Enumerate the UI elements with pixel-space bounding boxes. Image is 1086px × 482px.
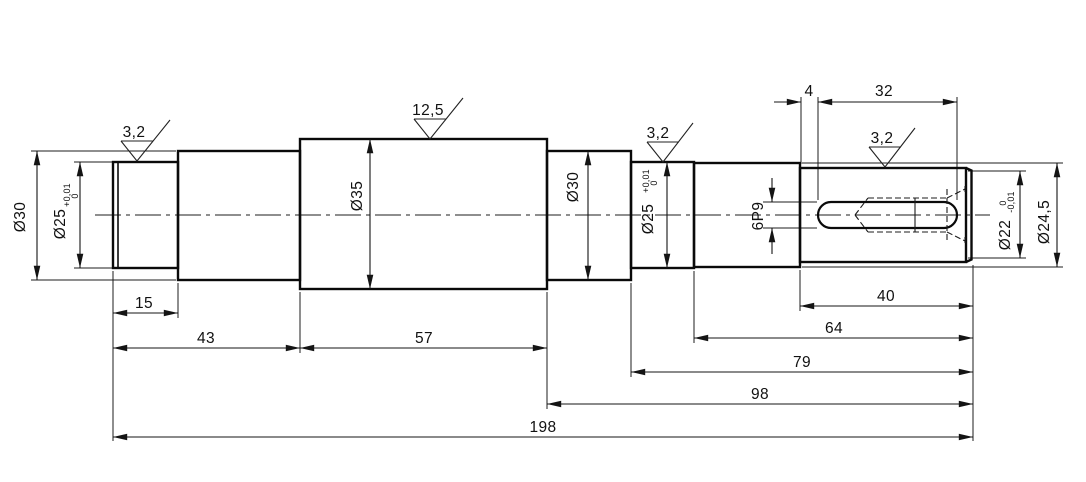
dim-diameter-30-left: Ø30 xyxy=(12,151,37,280)
roughness-center-section: 12,5 xyxy=(412,98,463,139)
dim-length-43: 43 xyxy=(113,330,300,348)
dim-label-d24-5: Ø24,5 xyxy=(1036,200,1053,244)
dim-diameter-25-left: Ø25 +0,01 0 xyxy=(52,162,80,268)
roughness-keyway-section: 3,2 xyxy=(869,128,915,167)
dim-diameter-35: Ø35 xyxy=(349,139,370,289)
dim-length-40: 40 xyxy=(800,288,973,306)
drawing-canvas: 15 43 57 40 64 79 98 198 4 32 Ø30 xyxy=(0,0,1086,482)
dim-length-198: 198 xyxy=(113,419,973,437)
roughness-left-journal: 3,2 xyxy=(121,120,170,161)
dim-keyway-width-6P9: 6P9 xyxy=(750,178,772,254)
dim-label-198: 198 xyxy=(529,419,556,436)
dim-label-d22: Ø22 xyxy=(997,220,1014,251)
dim-label-79: 79 xyxy=(793,354,811,371)
roughness-label: 3,2 xyxy=(123,124,146,141)
roughness-right-journal: 3,2 xyxy=(647,123,693,162)
dim-label-d35: Ø35 xyxy=(349,181,366,212)
dim-label-40: 40 xyxy=(877,288,895,305)
dim-label-4: 4 xyxy=(804,83,813,100)
dim-tol-d25-left-lower: 0 xyxy=(70,193,80,198)
roughness-label: 3,2 xyxy=(647,125,670,142)
dim-label-15: 15 xyxy=(135,295,153,312)
dim-label-43: 43 xyxy=(197,330,215,347)
dim-length-57: 57 xyxy=(300,330,547,348)
dim-length-64: 64 xyxy=(694,320,973,338)
dim-label-d25-left: Ø25 xyxy=(52,209,69,240)
shaft-drawing: 15 43 57 40 64 79 98 198 4 32 Ø30 xyxy=(0,0,1086,482)
dim-length-15: 15 xyxy=(113,295,178,313)
dim-label-32: 32 xyxy=(875,83,893,100)
roughness-label: 12,5 xyxy=(412,102,444,119)
dim-label-6P9: 6P9 xyxy=(750,202,767,231)
dim-label-64: 64 xyxy=(825,320,843,337)
dim-label-d25-right: Ø25 xyxy=(640,204,657,235)
dim-label-57: 57 xyxy=(415,330,433,347)
dim-label-98: 98 xyxy=(751,386,769,403)
dim-diameter-24-5: Ø24,5 xyxy=(1036,163,1057,267)
dim-length-98: 98 xyxy=(547,386,973,404)
dim-label-d30-left: Ø30 xyxy=(12,202,29,233)
dim-label-d30-mid: Ø30 xyxy=(565,172,582,203)
dim-tol-d22-lower: -0,01 xyxy=(1006,191,1016,213)
dim-length-79: 79 xyxy=(631,354,973,372)
dim-keyway-offset-4: 4 xyxy=(774,83,814,102)
dim-keyway-length-32: 32 xyxy=(818,83,957,102)
roughness-label: 3,2 xyxy=(871,130,894,147)
dim-tol-d25-right-lower: 0 xyxy=(649,180,659,185)
dim-diameter-22: Ø22 0 -0,01 xyxy=(997,171,1020,258)
